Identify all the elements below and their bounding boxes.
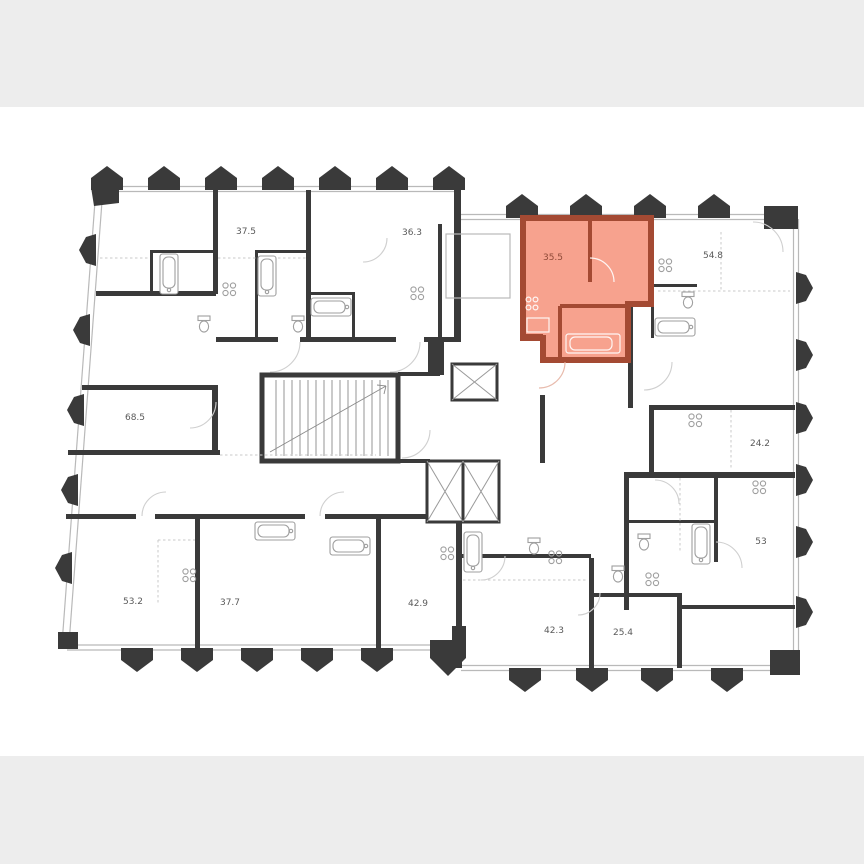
area-label: 37.7: [220, 598, 240, 608]
area-label: 53: [755, 537, 766, 547]
area-label: 36.3: [402, 228, 422, 238]
area-label: 42.9: [408, 599, 428, 609]
structural-pillars: [55, 166, 813, 692]
fixtures: [160, 254, 766, 586]
area-label: 53.2: [123, 597, 143, 607]
area-label: 68.5: [125, 413, 145, 423]
area-label: 25.4: [613, 628, 633, 638]
area-label-highlighted: 35.5: [543, 253, 563, 263]
area-label: 54.8: [703, 251, 723, 261]
staircase: [262, 375, 398, 461]
area-label: 42.3: [544, 626, 564, 636]
elevator-shafts: [427, 364, 499, 522]
floor-plan-viewer: 35.5 37.5 36.3 54.8 68.5 24.2 53 53.2 37…: [0, 0, 864, 864]
area-label: 24.2: [750, 439, 770, 449]
area-label: 37.5: [236, 227, 256, 237]
floor-plan: 35.5 37.5 36.3 54.8 68.5 24.2 53 53.2 37…: [0, 0, 864, 864]
